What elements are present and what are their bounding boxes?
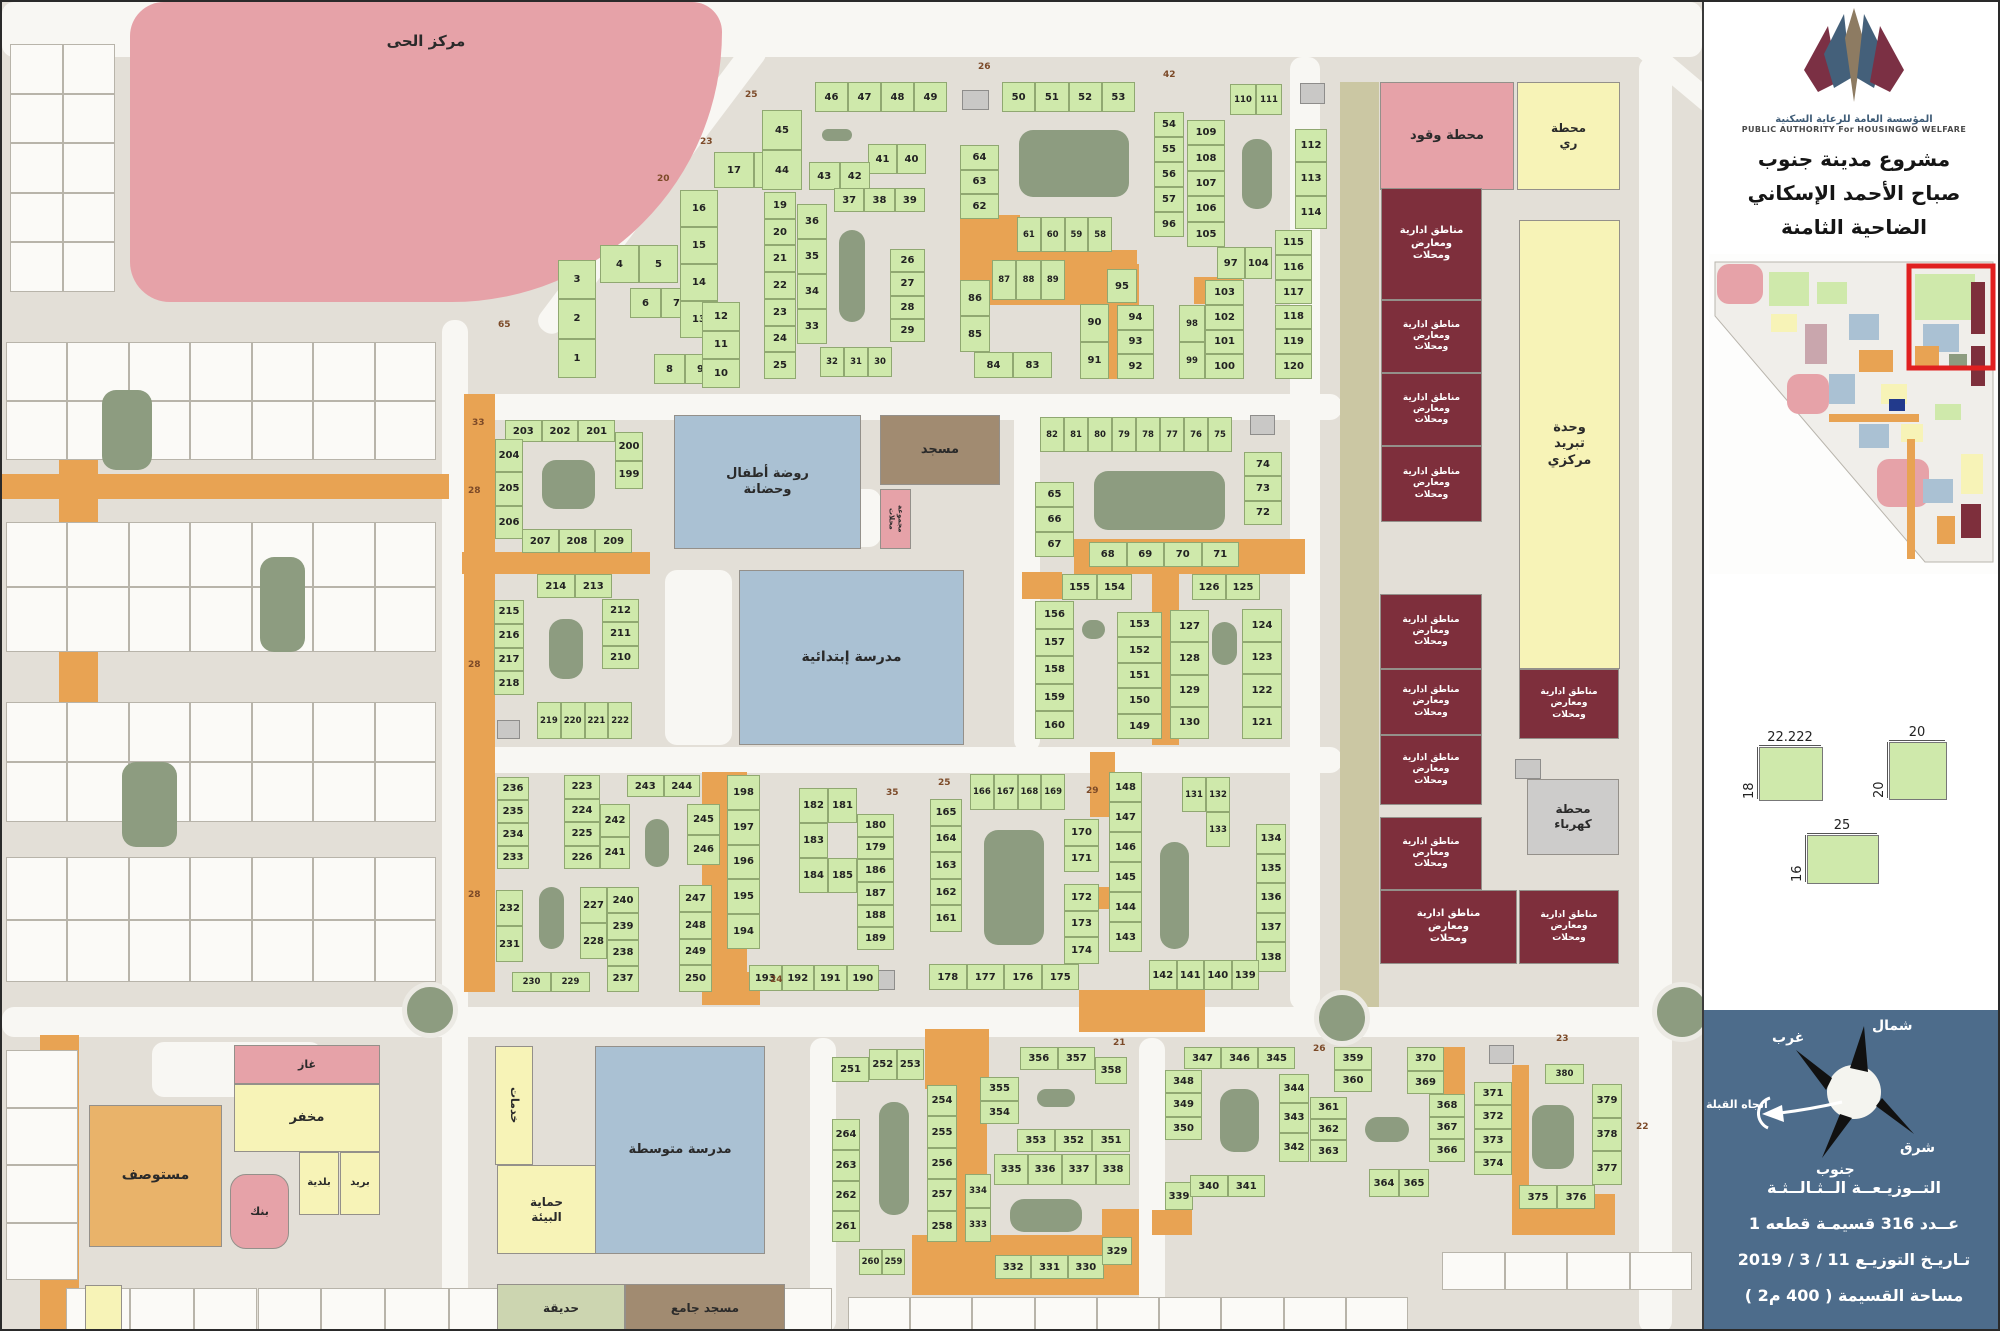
plot-339: 339 <box>1165 1182 1193 1210</box>
plot-143: 143 <box>1109 922 1142 952</box>
plot-184: 184 <box>799 858 828 893</box>
villa-lot <box>375 857 436 920</box>
villa-lot <box>972 1297 1034 1331</box>
villa-lot <box>10 242 63 292</box>
villa-lot <box>1442 1252 1505 1290</box>
dimension-label: 28 <box>468 660 481 670</box>
plot-146: 146 <box>1109 832 1142 862</box>
plot-10: 10 <box>702 359 740 388</box>
plot-367: 367 <box>1429 1117 1465 1140</box>
plot-45: 45 <box>762 110 802 150</box>
plot-353: 353 <box>1017 1129 1055 1152</box>
plot-142: 142 <box>1149 960 1177 990</box>
utility-box <box>1515 759 1541 779</box>
dimension-diagram: 22.222 18 <box>1759 747 1821 799</box>
villa-lot <box>190 587 251 652</box>
plot-116: 116 <box>1275 255 1312 280</box>
district-overview-inset <box>1709 254 1999 574</box>
plot-351: 351 <box>1092 1129 1130 1152</box>
plot-53: 53 <box>1102 82 1135 112</box>
park-green <box>260 557 305 652</box>
authority-logo-icon <box>1790 8 1918 106</box>
plot-368: 368 <box>1429 1094 1465 1117</box>
clinic: مستوصف <box>89 1105 222 1247</box>
plot-42: 42 <box>840 162 871 190</box>
villa-lot <box>1630 1252 1693 1290</box>
plot-344: 344 <box>1279 1074 1309 1103</box>
plot-264: 264 <box>832 1119 860 1150</box>
plot-243: 243 <box>627 775 664 797</box>
villa-lot <box>10 143 63 193</box>
plot-121: 121 <box>1242 707 1282 740</box>
plot-211: 211 <box>602 622 639 645</box>
admin-areas-3: مناطق ادارية ومعارض ومحلات <box>1381 373 1482 446</box>
villa-lot <box>375 702 436 762</box>
villa-lot <box>190 522 251 587</box>
admin-areas-4: مناطق ادارية ومعارض ومحلات <box>1381 446 1482 522</box>
sidebar: المؤسسة العامة للرعاية السكنية PUBLIC AU… <box>1702 2 2000 1331</box>
plot-92: 92 <box>1117 354 1154 379</box>
villa-lot <box>385 1288 449 1331</box>
plot-106: 106 <box>1187 196 1225 221</box>
dimension-label: 28 <box>468 890 481 900</box>
plot-136: 136 <box>1256 883 1286 913</box>
distribution-line: التــوزيـعــة الــثـالــثـة <box>1704 1170 2000 1206</box>
villa-lot <box>1035 1297 1097 1331</box>
villa-lot <box>63 94 116 144</box>
plot-373: 373 <box>1474 1129 1512 1152</box>
admin-areas-1: مناطق ادارية ومعارض ومحلات <box>1381 188 1482 300</box>
plot-256: 256 <box>927 1148 957 1179</box>
plot-360: 360 <box>1334 1070 1372 1093</box>
plot-5: 5 <box>639 245 678 283</box>
plot-202: 202 <box>542 420 579 442</box>
plot-253: 253 <box>897 1049 925 1080</box>
plot-48: 48 <box>881 82 914 112</box>
plot-149: 149 <box>1117 714 1162 739</box>
height-label: 18 <box>1742 747 1758 799</box>
park-green <box>1220 1089 1259 1152</box>
plot-376: 376 <box>1557 1185 1595 1209</box>
plot-71: 71 <box>1202 542 1240 567</box>
plot-21: 21 <box>764 245 796 272</box>
plot-144: 144 <box>1109 892 1142 922</box>
plot-155: 155 <box>1062 574 1097 600</box>
plot-11: 11 <box>702 331 740 360</box>
plot-91: 91 <box>1080 342 1109 380</box>
plot-103: 103 <box>1205 280 1244 305</box>
utility-box <box>1250 415 1275 435</box>
plot-378: 378 <box>1592 1118 1622 1152</box>
plot-70: 70 <box>1164 542 1202 567</box>
middle-school: مدرسة متوسطة <box>595 1046 765 1254</box>
plot-329: 329 <box>1102 1237 1132 1265</box>
plot-251: 251 <box>832 1057 869 1082</box>
dimension-label: 23 <box>1556 1034 1569 1044</box>
plot-32: 32 <box>820 347 844 377</box>
plot-380: 380 <box>1545 1064 1584 1084</box>
plot-8: 8 <box>654 354 685 384</box>
plot-336: 336 <box>1028 1154 1062 1185</box>
admin-areas-7: مناطق ادارية ومعارض ومحلات <box>1380 735 1482 805</box>
plot-81: 81 <box>1064 417 1088 452</box>
villa-lot <box>130 1288 194 1331</box>
plot-226: 226 <box>564 846 600 870</box>
villa-lot <box>375 587 436 652</box>
dimension-label: 29 <box>1086 786 1099 796</box>
plot-330: 330 <box>1068 1255 1104 1279</box>
park-green <box>1019 130 1129 197</box>
dimension-label: 35 <box>886 788 899 798</box>
plot-84: 84 <box>974 352 1013 378</box>
distribution-line: تـاريـخ التوزيـع 11 / 3 / 2019 <box>1704 1242 2000 1278</box>
villa-lot <box>67 857 128 920</box>
compass-north-label: شمال <box>1872 1018 1913 1034</box>
plot-147: 147 <box>1109 802 1142 832</box>
plot-111: 111 <box>1256 84 1282 115</box>
plot-255: 255 <box>927 1116 957 1147</box>
villa-lot <box>63 193 116 243</box>
plot-333: 333 <box>965 1208 991 1242</box>
villa-lot <box>1221 1297 1283 1331</box>
plot-57: 57 <box>1154 187 1184 212</box>
plot-56: 56 <box>1154 162 1184 187</box>
compass-qibla-label: اتجاه القبلة <box>1706 1098 1768 1111</box>
plot-364: 364 <box>1369 1169 1399 1197</box>
plot-150: 150 <box>1117 688 1162 713</box>
plot-245: 245 <box>687 804 720 835</box>
plot-118: 118 <box>1275 305 1312 330</box>
distribution-panel: شمال غرب شرق جنوب اتجاه القبلة التــوزيـ… <box>1704 1010 2000 1331</box>
plot-28: 28 <box>890 296 925 319</box>
org-name-arabic: المؤسسة العامة للرعاية السكنية <box>1704 114 2000 125</box>
plot-227: 227 <box>580 887 607 923</box>
plot-162: 162 <box>930 879 962 906</box>
villa-lot <box>6 702 67 762</box>
park-green <box>1160 842 1189 949</box>
villa-lot <box>6 342 67 401</box>
plot-188: 188 <box>857 905 894 928</box>
plot-374: 374 <box>1474 1152 1512 1175</box>
plot-20: 20 <box>764 219 796 246</box>
plot-213: 213 <box>575 574 613 598</box>
admin-areas-9: مناطق ادارية ومعارض ومحلات <box>1380 890 1517 964</box>
plot-15: 15 <box>680 227 718 264</box>
plot-34: 34 <box>797 274 827 309</box>
plot-96: 96 <box>1154 212 1184 237</box>
plot-44: 44 <box>762 150 802 190</box>
plot-3: 3 <box>558 260 596 299</box>
park-green <box>645 819 669 867</box>
plot-102: 102 <box>1205 305 1244 330</box>
plot-88: 88 <box>1016 260 1040 300</box>
plot-164: 164 <box>930 826 962 853</box>
plot-59: 59 <box>1065 217 1089 252</box>
plot-229: 229 <box>551 972 590 992</box>
plot-169: 169 <box>1041 774 1065 810</box>
plot-195: 195 <box>727 879 760 914</box>
plot-219: 219 <box>537 702 561 739</box>
plot-67: 67 <box>1035 532 1074 557</box>
electricity-station: محطة كهرباء <box>1527 779 1619 855</box>
plot-125: 125 <box>1226 574 1260 600</box>
plot-260: 260 <box>859 1249 882 1275</box>
villa-lot <box>1159 1297 1221 1331</box>
villa-lot <box>190 920 251 983</box>
plot-108: 108 <box>1187 145 1225 170</box>
plot-215: 215 <box>494 600 524 624</box>
plot-138: 138 <box>1256 942 1286 972</box>
plot-257: 257 <box>927 1179 957 1210</box>
plot-261: 261 <box>832 1211 860 1242</box>
villa-lot <box>1346 1297 1408 1331</box>
plot-372: 372 <box>1474 1105 1512 1128</box>
villa-lot <box>375 920 436 983</box>
plot-377: 377 <box>1592 1151 1622 1185</box>
villa-lot <box>67 587 128 652</box>
plot-140: 140 <box>1204 960 1232 990</box>
plot-76: 76 <box>1184 417 1208 452</box>
park-green <box>1037 1089 1075 1107</box>
plot-51: 51 <box>1035 82 1068 112</box>
dimension-label: 42 <box>1163 70 1176 80</box>
plot-183: 183 <box>799 823 828 858</box>
utility-box <box>1489 1045 1514 1064</box>
villa-lot <box>190 762 251 822</box>
plot-77: 77 <box>1160 417 1184 452</box>
plot-124: 124 <box>1242 609 1282 642</box>
plot-349: 349 <box>1165 1093 1202 1116</box>
plot-141: 141 <box>1177 960 1205 990</box>
plot-225: 225 <box>564 822 600 846</box>
utility-box <box>962 90 989 110</box>
width-label: 22.222 <box>1759 730 1821 746</box>
plot-131: 131 <box>1182 777 1206 812</box>
admin-areas-8: مناطق ادارية ومعارض ومحلات <box>1380 817 1482 890</box>
plot-340: 340 <box>1190 1175 1228 1197</box>
plot-334: 334 <box>965 1174 991 1208</box>
plot-40: 40 <box>897 144 926 174</box>
height-label: 16 <box>1790 835 1806 882</box>
villa-lot <box>313 401 374 460</box>
plot-50: 50 <box>1002 82 1035 112</box>
plot-87: 87 <box>992 260 1016 300</box>
villa-lot <box>321 1288 385 1331</box>
plot-89: 89 <box>1041 260 1065 300</box>
plot-366: 366 <box>1429 1139 1465 1162</box>
plot-98: 98 <box>1179 305 1205 342</box>
villa-lot <box>67 762 128 822</box>
police-post: مخفر <box>234 1084 380 1152</box>
plot-85: 85 <box>960 316 990 352</box>
plot-31: 31 <box>844 347 868 377</box>
villa-lot <box>252 702 313 762</box>
villa-lot <box>129 857 190 920</box>
villa-lot <box>252 401 313 460</box>
plot-158: 158 <box>1035 656 1074 684</box>
plot-43: 43 <box>809 162 840 190</box>
park-green <box>1365 1117 1409 1142</box>
plot-157: 157 <box>1035 629 1074 657</box>
plot-83: 83 <box>1013 352 1052 378</box>
villa-lot <box>313 522 374 587</box>
plot-177: 177 <box>967 964 1005 990</box>
villa-lot <box>63 242 116 292</box>
plot-148: 148 <box>1109 772 1142 802</box>
plot-363: 363 <box>1310 1140 1347 1162</box>
plot-139: 139 <box>1232 960 1260 990</box>
plot-369: 369 <box>1407 1071 1444 1095</box>
plot-16: 16 <box>680 190 718 227</box>
plot-75: 75 <box>1208 417 1232 452</box>
irrigation-station: محطة ري <box>1517 82 1620 190</box>
plot-49: 49 <box>914 82 947 112</box>
bank: بنك <box>230 1174 289 1249</box>
plot-180: 180 <box>857 814 894 837</box>
plot-379: 379 <box>1592 1084 1622 1118</box>
plot-41: 41 <box>868 144 897 174</box>
commercial-strip <box>1079 990 1205 1032</box>
plot-161: 161 <box>930 905 962 932</box>
plot-348: 348 <box>1165 1070 1202 1093</box>
dimension-label: 24 <box>770 975 783 985</box>
plot-55: 55 <box>1154 137 1184 162</box>
plot-210: 210 <box>602 646 639 669</box>
plot-114: 114 <box>1295 196 1327 229</box>
admin-areas-6: مناطق ادارية ومعارض ومحلات <box>1380 669 1482 735</box>
plot-222: 222 <box>608 702 632 739</box>
plot-152: 152 <box>1117 637 1162 662</box>
park-green <box>879 1102 909 1215</box>
plot-37: 37 <box>834 188 864 212</box>
villa-lot <box>67 920 128 983</box>
plot-26: 26 <box>890 249 925 272</box>
plot-263: 263 <box>832 1150 860 1181</box>
plot-167: 167 <box>994 774 1018 810</box>
villa-lot <box>1097 1297 1159 1331</box>
plot-185: 185 <box>828 858 857 893</box>
park-green <box>122 762 177 847</box>
plot-179: 179 <box>857 837 894 860</box>
road <box>1639 57 1672 1331</box>
plot-35: 35 <box>797 239 827 274</box>
plot-25: 25 <box>764 352 796 379</box>
plot-80: 80 <box>1088 417 1112 452</box>
villa-lot <box>252 920 313 983</box>
park-green <box>539 887 564 949</box>
plot-119: 119 <box>1275 329 1312 354</box>
plot-232: 232 <box>496 890 523 926</box>
villa-lot <box>252 342 313 401</box>
plot-346: 346 <box>1221 1047 1258 1069</box>
mosque: مسجد <box>880 415 1000 485</box>
post-office: بريد <box>340 1152 380 1215</box>
plot-117: 117 <box>1275 280 1312 305</box>
park-green <box>549 619 583 679</box>
park-green <box>542 460 595 509</box>
plot-97: 97 <box>1217 247 1245 279</box>
plot-36: 36 <box>797 204 827 239</box>
plot-205: 205 <box>495 472 523 505</box>
park-green <box>1082 620 1105 639</box>
plot-135: 135 <box>1256 854 1286 884</box>
plot-337: 337 <box>1062 1154 1096 1185</box>
villa-lot <box>6 857 67 920</box>
plot-250: 250 <box>679 965 712 992</box>
plot-356: 356 <box>1020 1047 1058 1070</box>
plot-4: 4 <box>600 245 639 283</box>
plot-74: 74 <box>1244 452 1282 476</box>
plot-172: 172 <box>1064 884 1099 911</box>
plot-358: 358 <box>1095 1057 1127 1084</box>
plot-230: 230 <box>512 972 551 992</box>
plot-220: 220 <box>561 702 585 739</box>
dimension-label: 21 <box>1113 1038 1126 1048</box>
compass-rose-icon: شمال غرب شرق جنوب اتجاه القبلة <box>1704 1010 2000 1180</box>
plot-126: 126 <box>1192 574 1226 600</box>
plot-240: 240 <box>607 887 639 913</box>
plot-178: 178 <box>929 964 967 990</box>
villa-lot <box>129 522 190 587</box>
villa-lot <box>252 762 313 822</box>
park-green <box>1212 622 1237 665</box>
plot-258: 258 <box>927 1211 957 1242</box>
villa-lot <box>375 342 436 401</box>
plot-352: 352 <box>1055 1129 1093 1152</box>
plot-189: 189 <box>857 927 894 950</box>
plot-355: 355 <box>980 1077 1019 1101</box>
plot-365: 365 <box>1399 1169 1429 1197</box>
plot-78: 78 <box>1136 417 1160 452</box>
plot-173: 173 <box>1064 911 1099 938</box>
villa-lot <box>1284 1297 1346 1331</box>
admin-areas-2: مناطق ادارية ومعارض ومحلات <box>1381 300 1482 373</box>
villa-lot <box>313 587 374 652</box>
kindergarten-nursery: روضة أطفال وحضانة <box>674 415 861 549</box>
plot-375: 375 <box>1519 1185 1557 1209</box>
plot-254: 254 <box>927 1085 957 1116</box>
admin-areas-5: مناطق ادارية ومعارض ومحلات <box>1380 594 1482 669</box>
plot-212: 212 <box>602 599 639 622</box>
villa-lot <box>313 857 374 920</box>
villa-lot <box>375 762 436 822</box>
plot-244: 244 <box>664 775 701 797</box>
plot-17: 17 <box>714 152 754 188</box>
plot-332: 332 <box>995 1255 1031 1279</box>
villa-lot <box>1505 1252 1568 1290</box>
plot-82: 82 <box>1040 417 1064 452</box>
villa-lot <box>63 44 116 94</box>
plot-216: 216 <box>494 624 524 648</box>
plot-345: 345 <box>1258 1047 1295 1069</box>
plot-343: 343 <box>1279 1103 1309 1132</box>
plot-95: 95 <box>1107 269 1137 303</box>
utility-box <box>497 720 520 739</box>
villa-lot <box>910 1297 972 1331</box>
villa-lot <box>6 762 67 822</box>
plot-113: 113 <box>1295 162 1327 195</box>
plot-354: 354 <box>980 1101 1019 1125</box>
road <box>665 570 732 745</box>
project-title-line: صباح الأحمد الإسكاني <box>1704 176 2000 210</box>
park-green <box>822 129 852 141</box>
villa-lot <box>190 401 251 460</box>
plot-359: 359 <box>1334 1047 1372 1070</box>
plot-72: 72 <box>1244 501 1282 525</box>
plot-231: 231 <box>496 926 523 962</box>
plot-187: 187 <box>857 882 894 905</box>
plot-357: 357 <box>1058 1047 1096 1070</box>
